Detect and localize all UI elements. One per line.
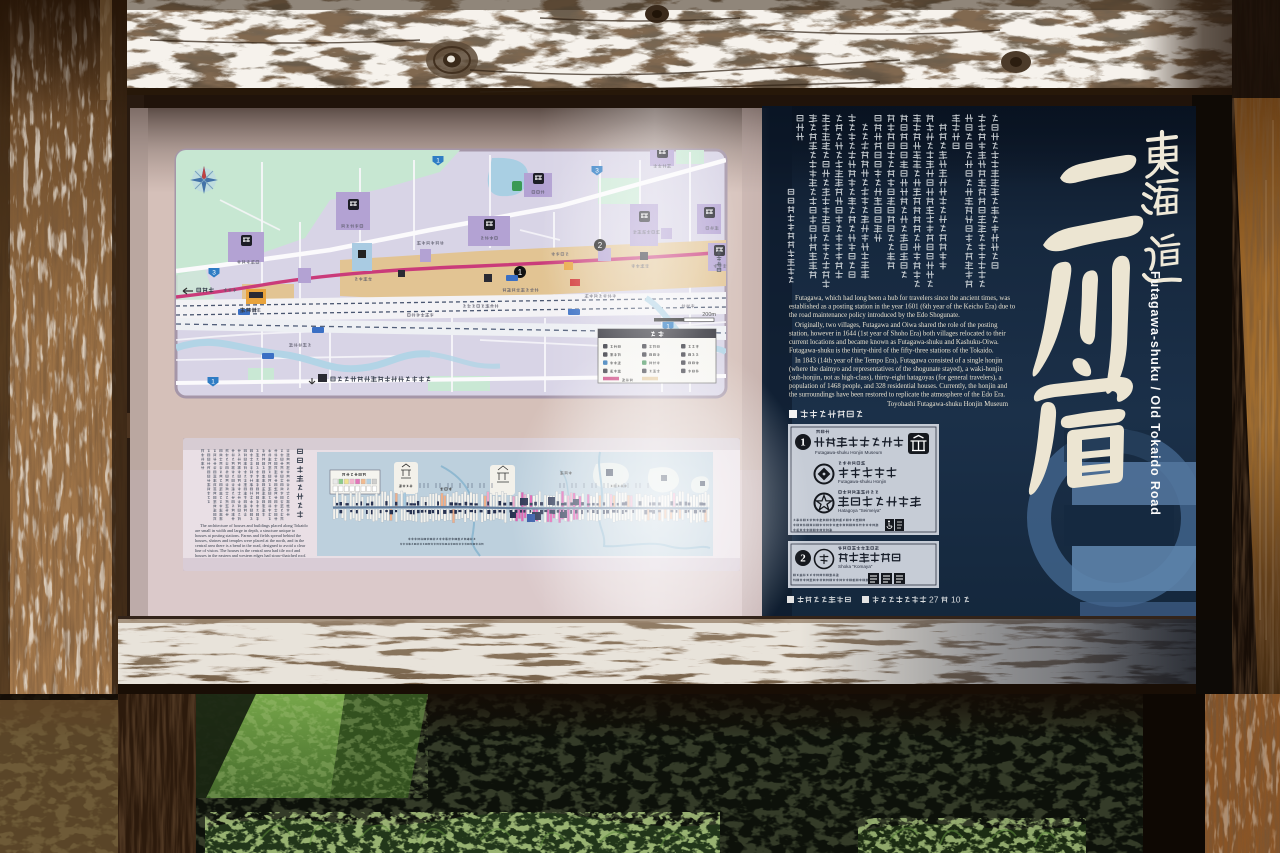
svg-text:Originally, two villages, Futa: Originally, two villages, Futagawa and O… (795, 322, 998, 329)
svg-text:Futagawa-shuku / Old Tokaido R: Futagawa-shuku / Old Tokaido Road (1148, 271, 1162, 516)
svg-text:current locations and became k: current locations and became known as Fu… (789, 339, 999, 346)
svg-text:houses in the eastern and west: houses in the eastern and western edges … (195, 553, 306, 558)
svg-text:Futagawa, which had long been: Futagawa, which had long been a hub for … (795, 295, 1010, 302)
svg-text:1: 1 (800, 437, 806, 449)
svg-text:(where the daimyo and represen: (where the daimyo and representatives of… (789, 366, 1003, 373)
svg-text:Shoka "Komaya": Shoka "Komaya" (838, 564, 873, 569)
svg-text:the road maintenance policy in: the road maintenance policy introduced b… (789, 312, 960, 319)
svg-text:1: 1 (436, 158, 440, 165)
svg-text:the surroundings have been res: the surroundings have been restored to r… (789, 392, 1005, 399)
svg-text:station, however in 1644 (1st: station, however in 1644 (1st year of Sh… (789, 331, 1006, 338)
svg-text:27: 27 (929, 595, 939, 605)
svg-text:Toyohashi Futagawa-shuku Honji: Toyohashi Futagawa-shuku Honjin Museum (887, 401, 1009, 408)
svg-text:established as a posting stati: established as a posting station in the … (789, 304, 1016, 311)
svg-text:10: 10 (951, 595, 961, 605)
svg-text:1: 1 (211, 379, 215, 386)
svg-text:3: 3 (212, 270, 216, 277)
svg-text:Futagawa-shuku Honjin Museum: Futagawa-shuku Honjin Museum (815, 450, 882, 455)
svg-text:Futagawa-shuku is the thirty-t: Futagawa-shuku is the thirty-third of th… (789, 348, 994, 355)
svg-text:Futagawa-shuku Honjin: Futagawa-shuku Honjin (838, 479, 887, 484)
svg-text:(sub-honjin, not as high-class: (sub-honjin, not as high-class), thirty-… (789, 375, 1002, 382)
svg-text:population of 1468 people, and: population of 1468 people, and 328 resid… (789, 383, 1008, 390)
svg-text:Hatagoya "Seimeiya": Hatagoya "Seimeiya" (838, 508, 881, 513)
svg-text:In 1843 (14th year of the Temp: In 1843 (14th year of the Tempo Era), Fu… (795, 358, 1003, 365)
svg-text:1: 1 (518, 268, 523, 277)
